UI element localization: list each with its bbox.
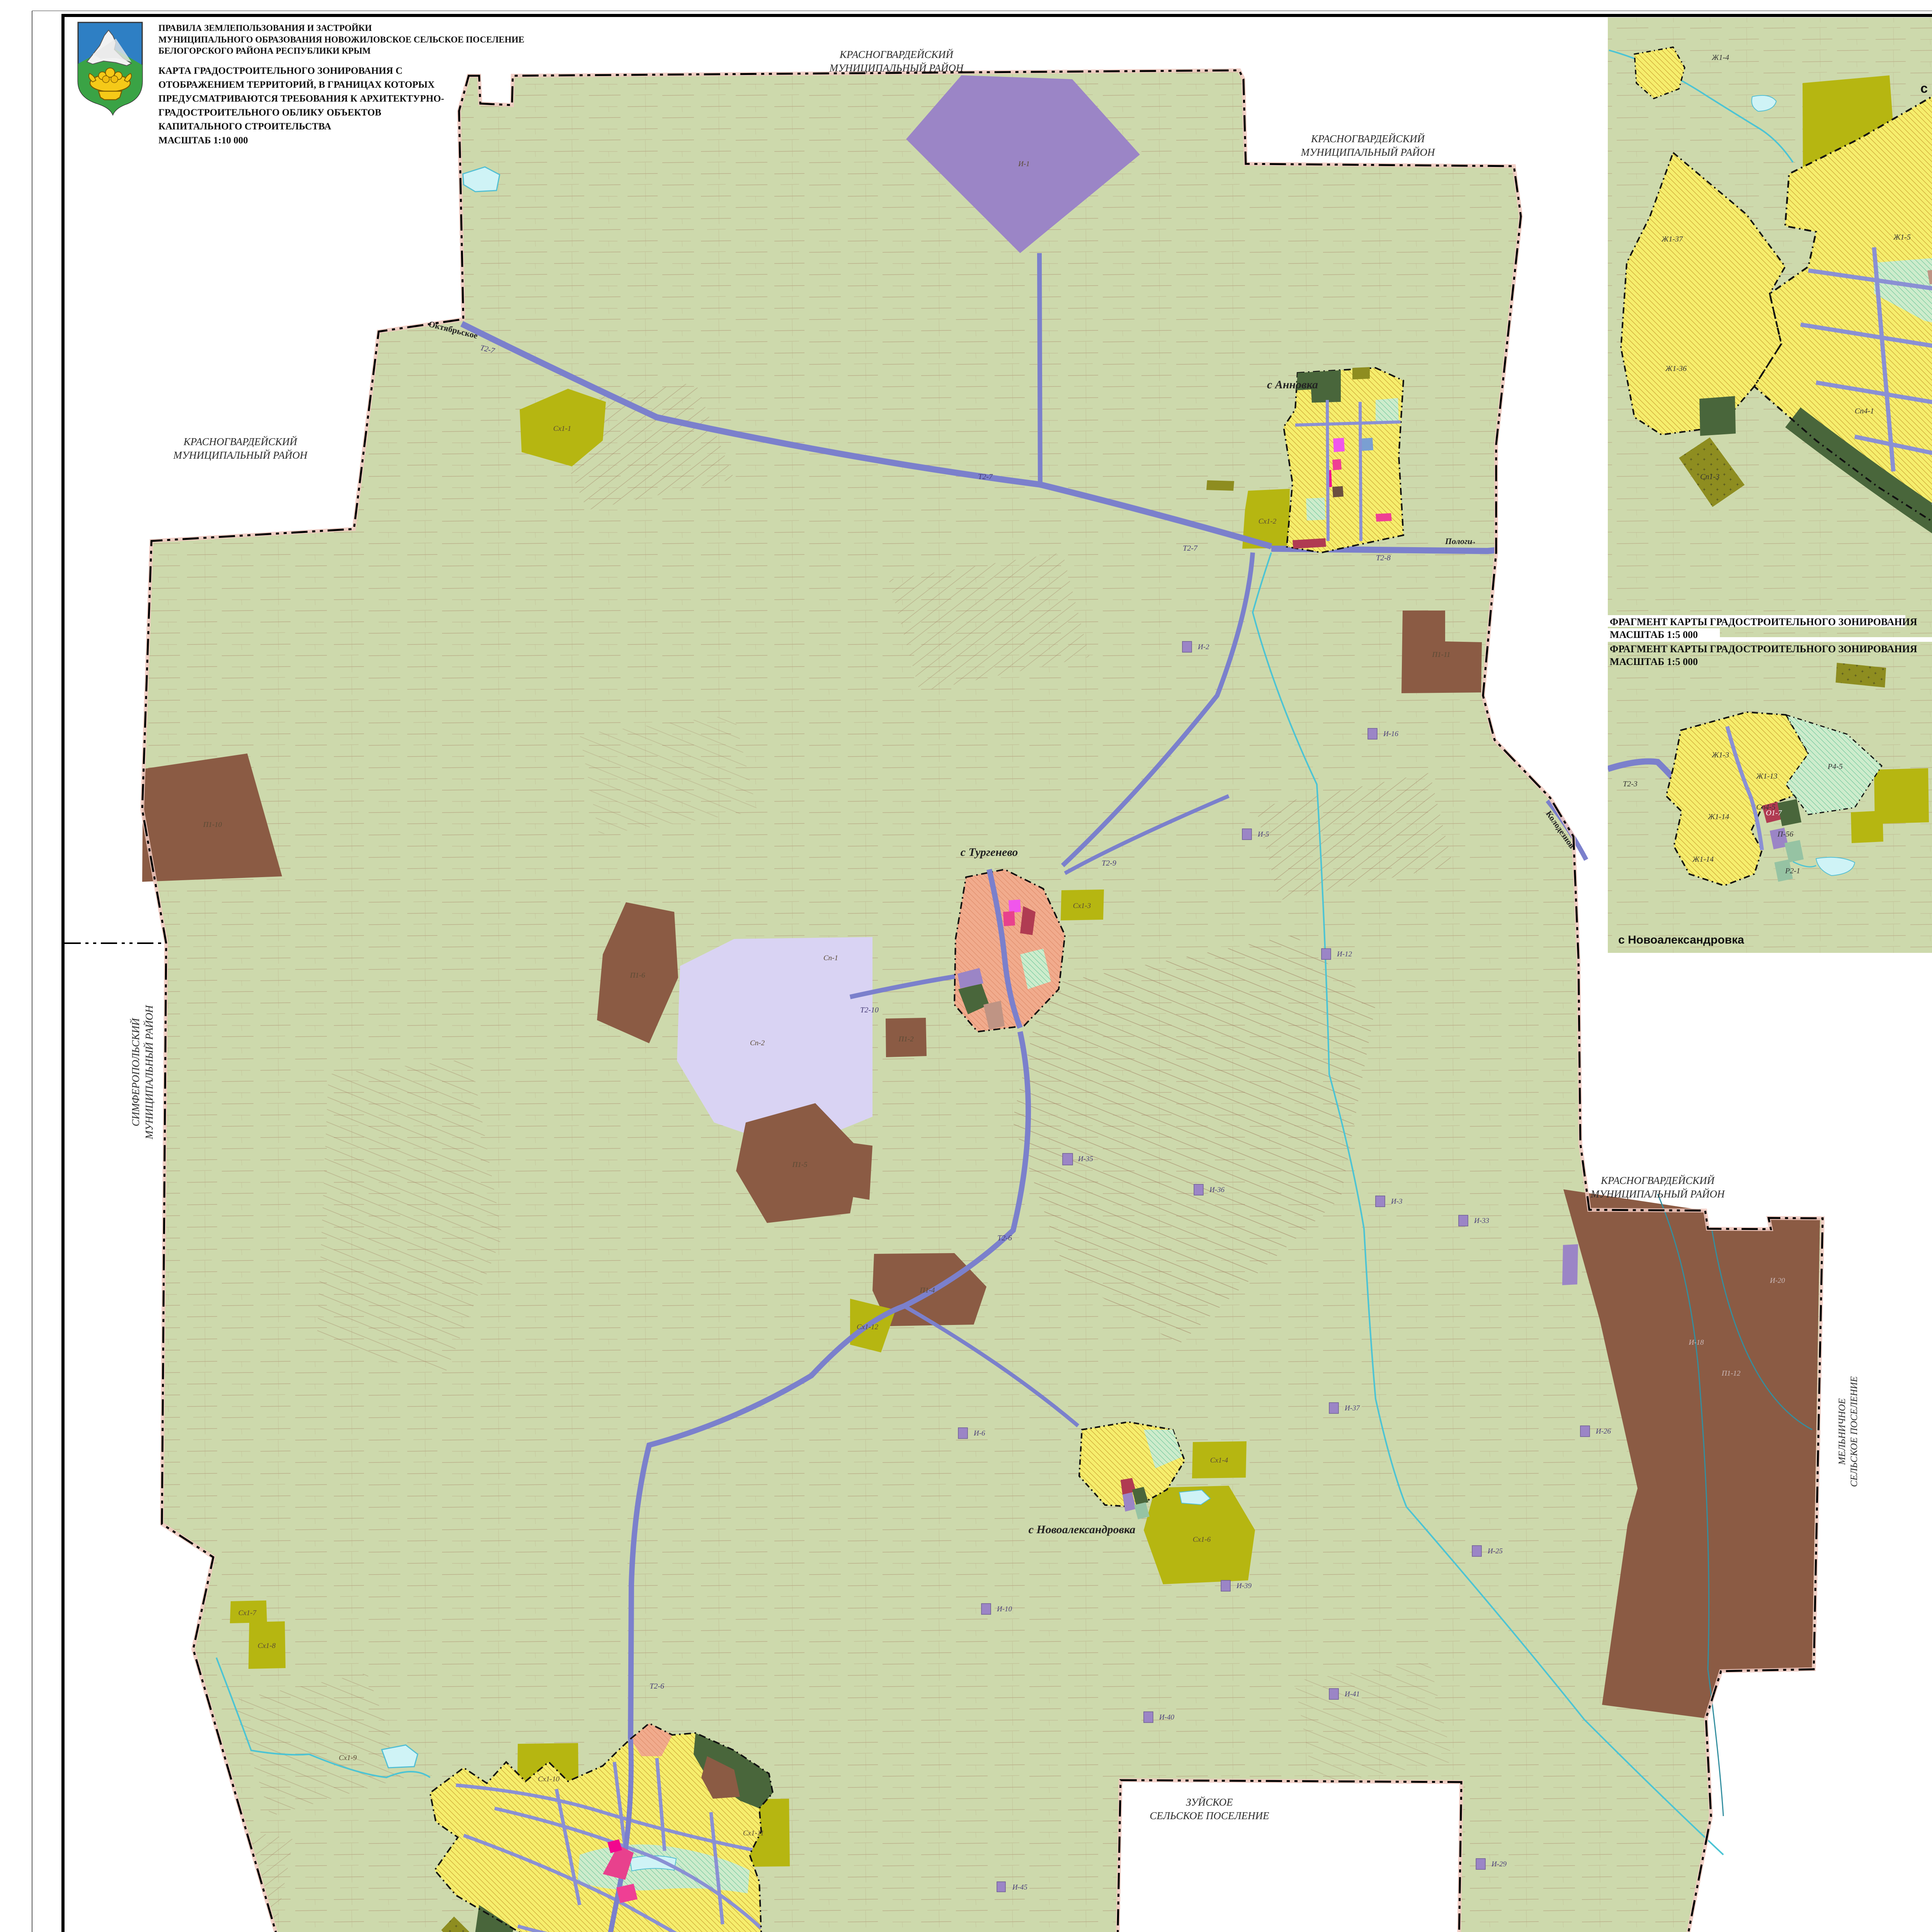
svg-text:И-6: И-6 (973, 1429, 985, 1437)
svg-text:Сх1-10: Сх1-10 (538, 1775, 560, 1783)
svg-text:Сх1-4: Сх1-4 (1210, 1456, 1228, 1464)
svg-text:Ж1-37: Ж1-37 (1661, 235, 1683, 243)
svg-text:И-12: И-12 (1337, 950, 1352, 958)
svg-text:МУНИЦИПАЛЬНЫЙ РАЙОН: МУНИЦИПАЛЬНЫЙ РАЙОН (173, 449, 308, 461)
svg-text:Сх1-3: Сх1-3 (1073, 902, 1091, 910)
svg-text:СИМФЕРОПОЛЬСКИЙ: СИМФЕРОПОЛЬСКИЙ (129, 1017, 141, 1126)
svg-text:Сх1-2: Сх1-2 (1259, 517, 1277, 526)
svg-text:МУНИЦИПАЛЬНЫЙ РАЙОН: МУНИЦИПАЛЬНЫЙ РАЙОН (1590, 1188, 1725, 1200)
svg-text:МУНИЦИПАЛЬНЫЙ РАЙОН: МУНИЦИПАЛЬНЫЙ РАЙОН (1301, 146, 1435, 158)
svg-text:Сх1-8: Сх1-8 (258, 1642, 276, 1650)
svg-text:МАСШТАБ 1:5 000: МАСШТАБ 1:5 000 (1610, 629, 1698, 640)
svg-text:МАСШТАБ 1:5 000: МАСШТАБ 1:5 000 (1610, 656, 1698, 667)
svg-text:П1-11: П1-11 (1432, 651, 1450, 659)
svg-text:И-36: И-36 (1209, 1186, 1225, 1194)
svg-text:Т2-10: Т2-10 (860, 1006, 879, 1014)
svg-text:МУНИЦИПАЛЬНОГО ОБРАЗОВАНИЯ НОВ: МУНИЦИПАЛЬНОГО ОБРАЗОВАНИЯ НОВОЖИЛОВСКОЕ… (158, 35, 524, 44)
svg-text:КАПИТАЛЬНОГО СТРОИТЕЛЬСТВА: КАПИТАЛЬНОГО СТРОИТЕЛЬСТВА (158, 121, 331, 132)
svg-text:Сх1-7: Сх1-7 (238, 1609, 257, 1617)
svg-text:МУНИЦИПАЛЬНЫЙ РАЙОН: МУНИЦИПАЛЬНЫЙ РАЙОН (829, 62, 964, 74)
svg-text:И-40: И-40 (1159, 1713, 1175, 1721)
svg-text:И-3: И-3 (1391, 1197, 1403, 1206)
svg-text:КРАСНОГВАРДЕЙСКИЙ: КРАСНОГВАРДЕЙСКИЙ (183, 435, 298, 447)
svg-text:Ж1-3: Ж1-3 (1711, 751, 1729, 759)
svg-text:Сх1-9: Сх1-9 (339, 1754, 357, 1762)
svg-text:ПРАВИЛА ЗЕМЛЕПОЛЬЗОВАНИЯ И ЗАС: ПРАВИЛА ЗЕМЛЕПОЛЬЗОВАНИЯ И ЗАСТРОЙКИ (158, 23, 372, 33)
svg-text:с Новожиловка: с Новожиловка (1920, 81, 1932, 96)
svg-text:МУНИЦИПАЛЬНЫЙ РАЙОН: МУНИЦИПАЛЬНЫЙ РАЙОН (143, 1005, 155, 1139)
svg-text:П1-5: П1-5 (792, 1161, 807, 1169)
svg-text:П1-2: П1-2 (898, 1035, 914, 1043)
svg-text:П-56: П-56 (1777, 830, 1793, 838)
svg-text:И-26: И-26 (1595, 1427, 1611, 1435)
svg-text:Р2-1: Р2-1 (1785, 867, 1800, 875)
svg-text:И-5: И-5 (1257, 830, 1269, 838)
svg-text:с Анновка: с Анновка (1267, 378, 1318, 391)
svg-text:ГРАДОСТРОИТЕЛЬНОГО ОБЛИКУ ОБЪЕ: ГРАДОСТРОИТЕЛЬНОГО ОБЛИКУ ОБЪЕКТОВ (158, 107, 381, 118)
svg-text:ФРАГМЕНТ КАРТЫ ГРАДОСТРОИТЕЛЬН: ФРАГМЕНТ КАРТЫ ГРАДОСТРОИТЕЛЬНОГО ЗОНИРО… (1610, 616, 1917, 628)
svg-text:КАРТА ГРАДОСТРОИТЕЛЬНОГО ЗОНИР: КАРТА ГРАДОСТРОИТЕЛЬНОГО ЗОНИРОВАНИЯ С (158, 66, 403, 76)
svg-text:П1-4: П1-4 (919, 1286, 935, 1294)
svg-text:БЕЛОГОРСКОГО РАЙОНА РЕСПУБЛИКИ: БЕЛОГОРСКОГО РАЙОНА РЕСПУБЛИКИ КРЫМ (158, 46, 371, 56)
svg-text:Сх1-6: Сх1-6 (1193, 1536, 1211, 1544)
svg-text:Ж1-14: Ж1-14 (1708, 813, 1729, 821)
svg-text:ФРАГМЕНТ КАРТЫ ГРАДОСТРОИТЕЛЬН: ФРАГМЕНТ КАРТЫ ГРАДОСТРОИТЕЛЬНОГО ЗОНИРО… (1610, 643, 1917, 655)
svg-text:Т2-3: Т2-3 (1623, 780, 1638, 788)
svg-text:с Тургенево: с Тургенево (961, 846, 1018, 859)
svg-text:И-45: И-45 (1012, 1883, 1027, 1891)
svg-text:И-35: И-35 (1078, 1155, 1093, 1163)
svg-text:П1-6: П1-6 (629, 971, 645, 980)
svg-text:Сх1-11: Сх1-11 (743, 1829, 764, 1837)
svg-text:→: → (1468, 536, 1477, 546)
svg-text:Т2-7: Т2-7 (978, 473, 993, 481)
svg-text:Сх1-12: Сх1-12 (857, 1323, 878, 1331)
svg-text:ЗУЙСКОЕ: ЗУЙСКОЕ (1186, 1796, 1233, 1808)
svg-text:Сх1-1: Сх1-1 (553, 425, 571, 433)
svg-text:Ж1-4: Ж1-4 (1711, 53, 1729, 62)
svg-text:И-10: И-10 (997, 1605, 1012, 1613)
svg-text:И-16: И-16 (1383, 730, 1399, 738)
svg-text:Ж1-36: Ж1-36 (1665, 364, 1687, 373)
svg-text:Т2-8: Т2-8 (1376, 554, 1391, 562)
svg-text:КРАСНОГВАРДЕЙСКИЙ: КРАСНОГВАРДЕЙСКИЙ (839, 48, 954, 60)
svg-text:с Новоалександровка: с Новоалександровка (1029, 1523, 1136, 1536)
svg-text:И-33: И-33 (1474, 1217, 1489, 1225)
svg-text:с Новоалександровка: с Новоалександровка (1618, 934, 1744, 946)
svg-text:П1-12: П1-12 (1721, 1369, 1741, 1378)
svg-text:Сп4-1: Сп4-1 (1855, 407, 1874, 415)
svg-text:Сп-2: Сп-2 (750, 1039, 765, 1047)
svg-text:ОТОБРАЖЕНИЕМ ТЕРРИТОРИЙ, В ГРА: ОТОБРАЖЕНИЕМ ТЕРРИТОРИЙ, В ГРАНИЦАХ КОТО… (158, 79, 435, 90)
svg-text:Р4-5: Р4-5 (1827, 762, 1843, 771)
svg-text:Т2-6: Т2-6 (650, 1682, 664, 1690)
svg-text:И-39: И-39 (1236, 1582, 1252, 1590)
svg-text:И-18: И-18 (1688, 1338, 1704, 1347)
svg-text:МЕЛЬНИЧНОЕ: МЕЛЬНИЧНОЕ (1837, 1398, 1847, 1466)
svg-text:КРАСНОГВАРДЕЙСКИЙ: КРАСНОГВАРДЕЙСКИЙ (1600, 1174, 1715, 1186)
svg-text:Сп-1: Сп-1 (823, 954, 838, 962)
svg-text:П1-10: П1-10 (203, 821, 222, 829)
svg-text:СЕЛЬСКОЕ ПОСЕЛЕНИЕ: СЕЛЬСКОЕ ПОСЕЛЕНИЕ (1150, 1810, 1269, 1821)
svg-text:ПРЕДУСМАТРИВАЮТСЯ ТРЕБОВАНИЯ К: ПРЕДУСМАТРИВАЮТСЯ ТРЕБОВАНИЯ К АРХИТЕКТУ… (158, 94, 444, 104)
svg-text:И-2: И-2 (1197, 643, 1209, 651)
svg-text:И-1: И-1 (1018, 160, 1030, 168)
svg-text:Т2-9: Т2-9 (1102, 859, 1116, 867)
svg-text:МАСШТАБ 1:10 000: МАСШТАБ 1:10 000 (158, 135, 248, 146)
svg-text:Ж1-14: Ж1-14 (1692, 855, 1714, 864)
svg-text:Сп1-3: Сп1-3 (1700, 473, 1719, 481)
svg-text:И-20: И-20 (1769, 1277, 1785, 1285)
svg-text:Сп4-5: Сп4-5 (1756, 803, 1776, 811)
svg-text:Ж1-13: Ж1-13 (1756, 772, 1777, 781)
svg-text:Т2-6: Т2-6 (997, 1234, 1012, 1242)
svg-text:И-29: И-29 (1491, 1860, 1507, 1868)
svg-text:Ж1-5: Ж1-5 (1893, 233, 1911, 241)
svg-text:И-25: И-25 (1487, 1547, 1503, 1555)
svg-text:Т2-7: Т2-7 (1183, 544, 1198, 553)
svg-text:СЕЛЬСКОЕ ПОСЕЛЕНИЕ: СЕЛЬСКОЕ ПОСЕЛЕНИЕ (1849, 1376, 1859, 1487)
svg-text:И-41: И-41 (1344, 1690, 1360, 1698)
svg-text:КРАСНОГВАРДЕЙСКИЙ: КРАСНОГВАРДЕЙСКИЙ (1311, 133, 1425, 145)
svg-text:И-37: И-37 (1344, 1404, 1361, 1412)
